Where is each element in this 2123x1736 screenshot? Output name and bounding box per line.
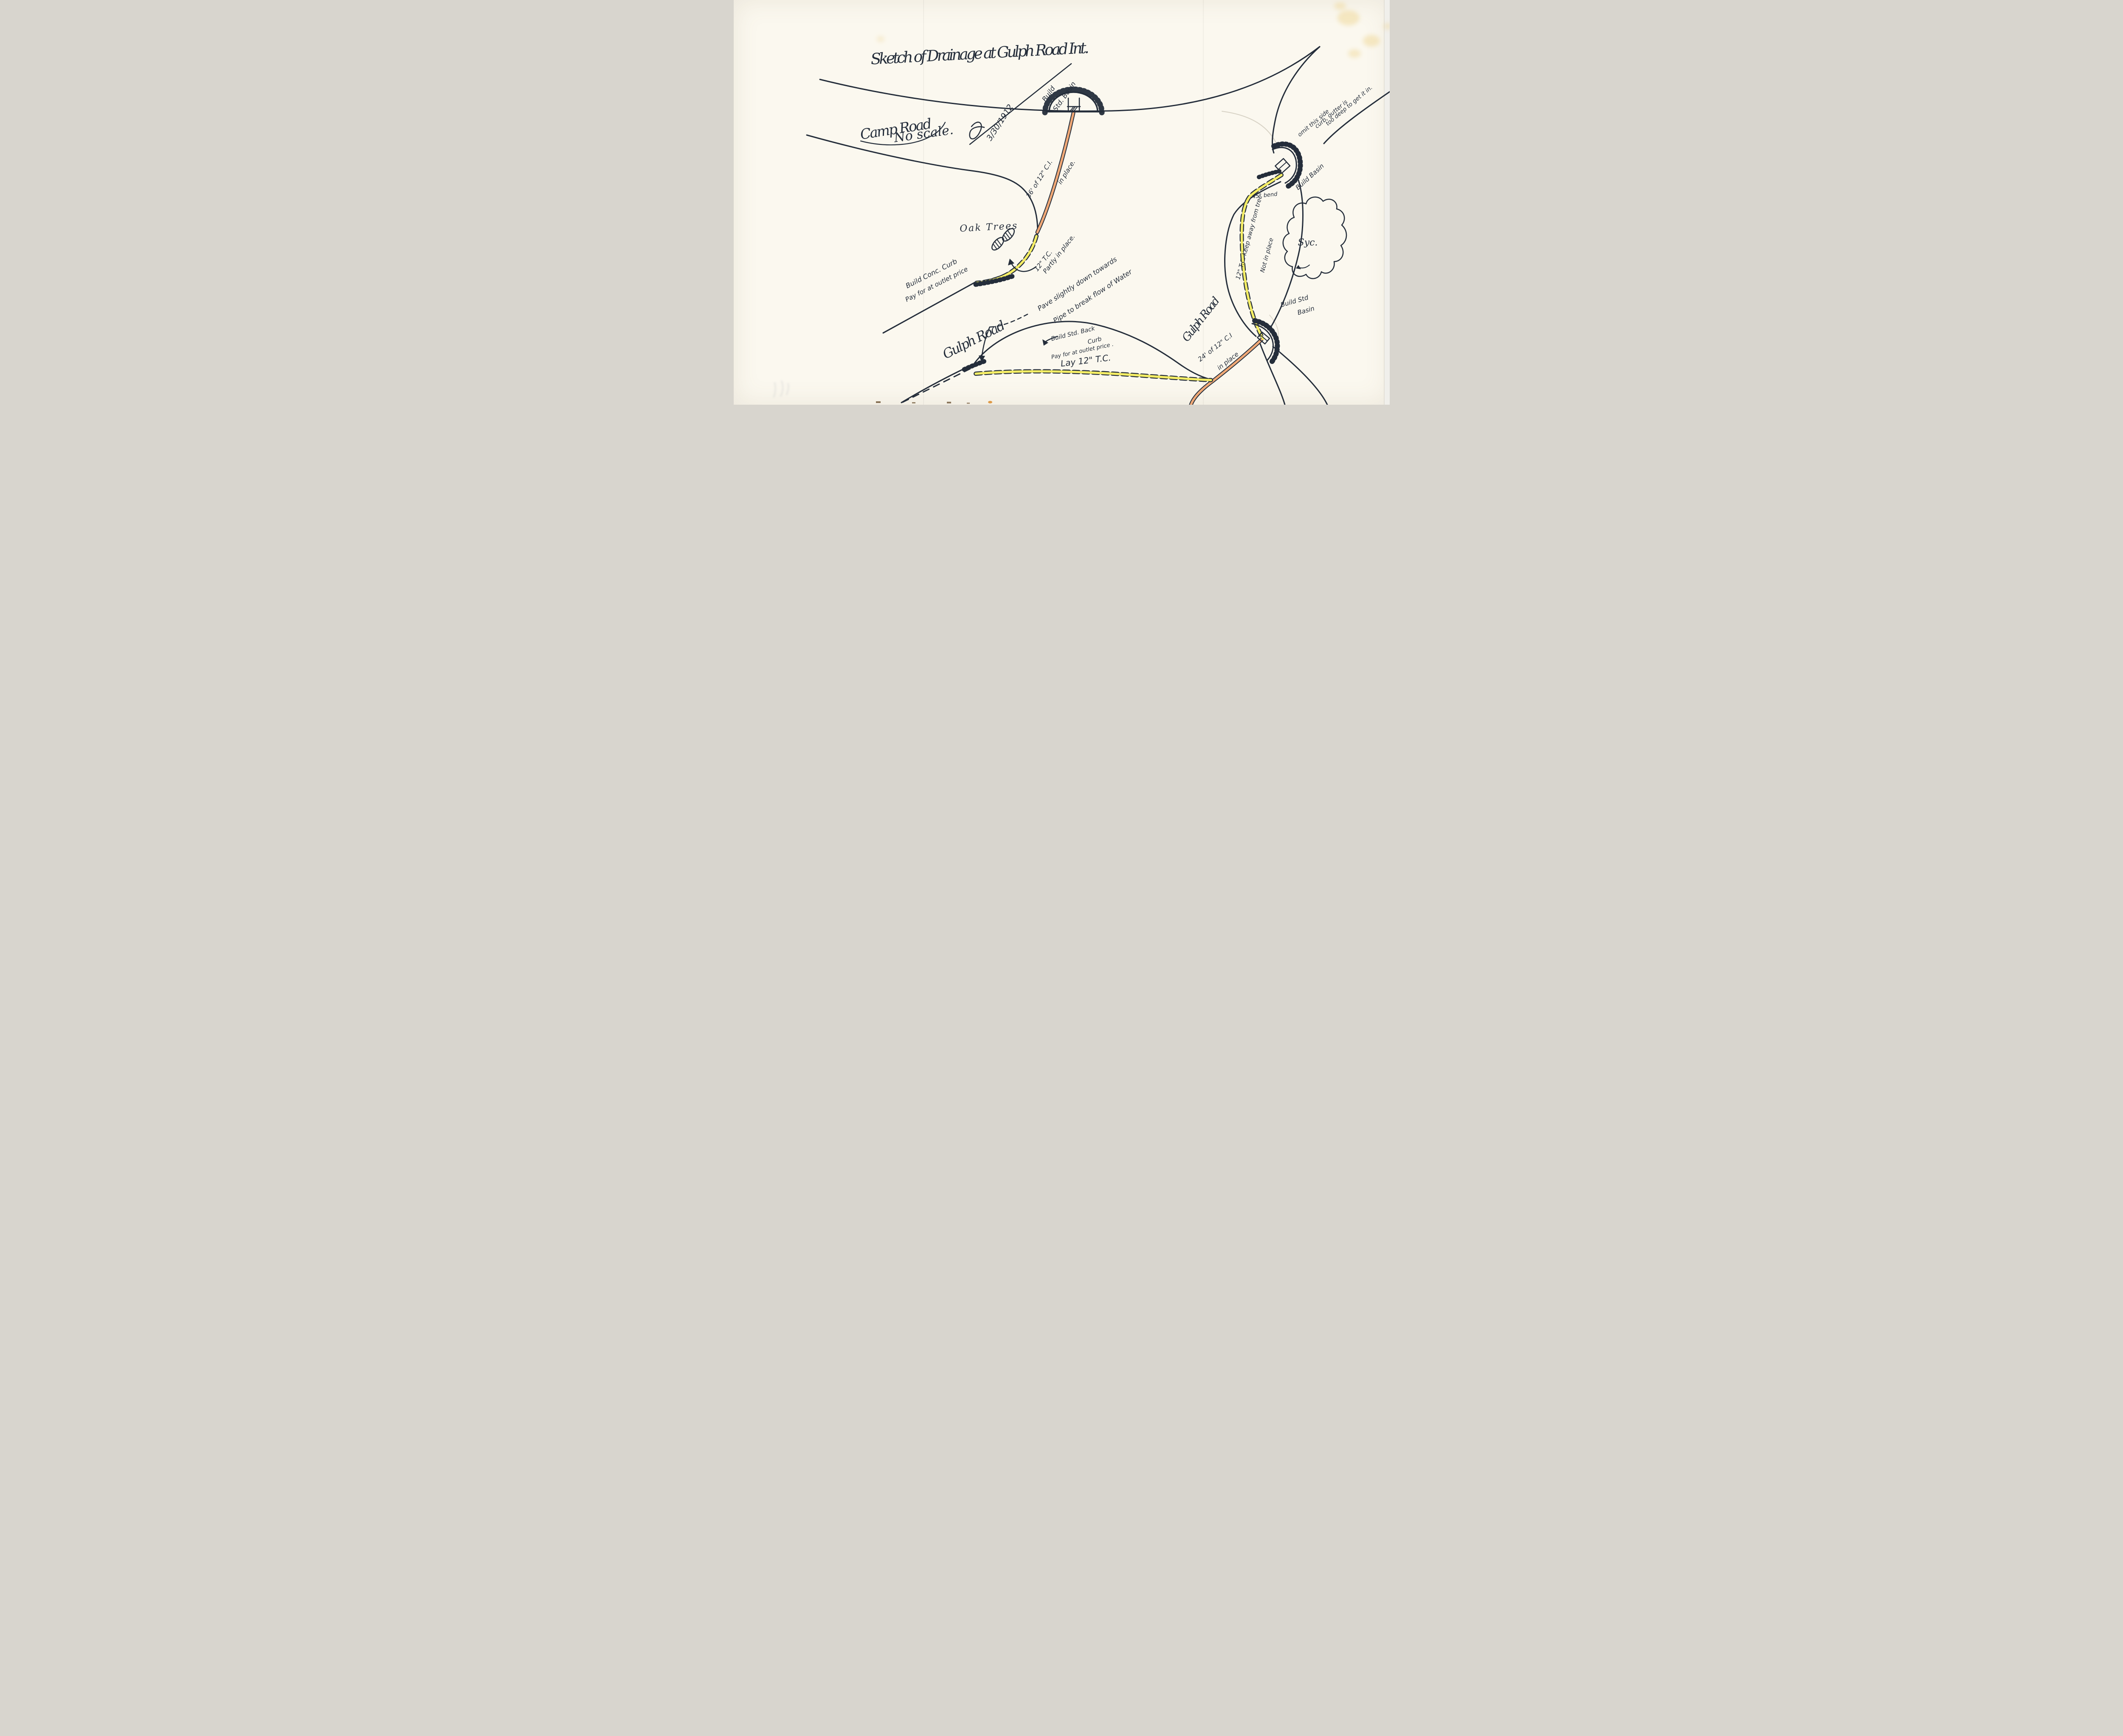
ci-pipe-bottom xyxy=(1191,340,1261,405)
camp-road-lower-edge xyxy=(807,135,1038,233)
signature-monogram xyxy=(969,122,984,139)
ci-top-label-line1: 36' of 12" C.I. xyxy=(1024,158,1054,199)
tc-pipe-bottom-lay xyxy=(976,371,1211,380)
tc-partly-arrowhead xyxy=(1008,259,1014,265)
gulph-road-right-label: Gulph Road xyxy=(1180,295,1222,344)
paper-artifacts xyxy=(774,0,1390,405)
leaders-and-flourishes xyxy=(861,64,1071,362)
sketch-canvas: Sketch of Drainage at Gulph Road Int. No… xyxy=(734,0,1390,405)
scanned-drainage-sketch: Sketch of Drainage at Gulph Road Int. No… xyxy=(734,0,1390,405)
pipes xyxy=(976,113,1281,405)
date-note: 3/30/1912 xyxy=(985,103,1015,143)
right-road-right-edge-exit xyxy=(1273,347,1327,405)
small-arrowhead xyxy=(1296,265,1301,269)
gulph-road-label: Gulph Road xyxy=(940,318,1008,362)
right-top-catch-basin xyxy=(1259,144,1301,187)
sketch-title: Sketch of Drainage at Gulph Road Int. xyxy=(870,39,1089,68)
west-curb-hatching xyxy=(976,276,1013,285)
oak-tree-symbol xyxy=(990,236,1005,252)
scan-edge-strip xyxy=(1385,0,1390,405)
not-in-place-label: Not in place xyxy=(1259,237,1275,273)
bottom-edge-specks xyxy=(876,401,992,404)
sycamore-label: Syc. xyxy=(1298,237,1318,248)
build-std-basin-bottom-line2: Basin xyxy=(1296,304,1315,317)
bleed-through-marks xyxy=(774,380,788,397)
pencil-omitted-curb xyxy=(1222,111,1277,145)
